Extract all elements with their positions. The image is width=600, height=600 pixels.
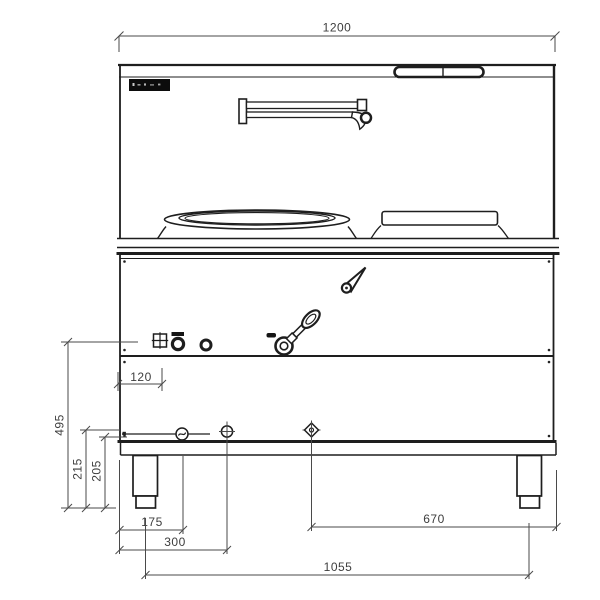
side-burner bbox=[371, 212, 509, 239]
leg-right-foot bbox=[520, 496, 540, 508]
igniter-button bbox=[152, 332, 168, 348]
dim-label-300: 300 bbox=[164, 535, 186, 549]
burner-knob-1 bbox=[172, 338, 183, 349]
brand-badge bbox=[129, 79, 170, 91]
knob-marker-dash bbox=[172, 332, 185, 336]
wok-range-elevation-drawing: 1200 495 215 205 120 bbox=[0, 0, 600, 600]
gas-valve-lever bbox=[276, 307, 323, 354]
panel-screws bbox=[123, 260, 550, 437]
faucet bbox=[239, 99, 371, 129]
technical-drawing-canvas: 1200 495 215 205 120 bbox=[0, 0, 600, 600]
drain-assembly bbox=[122, 428, 210, 440]
leg-left bbox=[133, 456, 158, 509]
dim-offset-120: 120 bbox=[114, 368, 166, 391]
wok-burner bbox=[158, 210, 357, 239]
vent-slot bbox=[395, 67, 484, 77]
dim-leg-205: 205 bbox=[90, 433, 128, 512]
drain-pipe-fitting bbox=[123, 432, 126, 435]
dim-label-175: 175 bbox=[141, 515, 163, 529]
base-rail bbox=[121, 443, 557, 455]
appliance-body bbox=[117, 65, 560, 508]
faucet-spout-arm bbox=[247, 112, 353, 118]
on-marker bbox=[267, 333, 277, 338]
control-cluster bbox=[152, 268, 366, 355]
dim-total-width: 1200 bbox=[115, 21, 560, 53]
dim-height-495: 495 bbox=[53, 338, 139, 512]
leg-right bbox=[517, 456, 542, 509]
leg-left-foot bbox=[136, 496, 156, 508]
burner-knob-2 bbox=[201, 340, 211, 350]
dim-label-215: 215 bbox=[71, 458, 85, 480]
dim-label-205: 205 bbox=[90, 460, 104, 482]
dim-label-1055: 1055 bbox=[324, 560, 353, 574]
dim-label-495: 495 bbox=[53, 414, 67, 436]
worktop bbox=[117, 239, 560, 254]
pilot-valve-lever bbox=[342, 268, 366, 293]
faucet-valve-knob bbox=[361, 113, 371, 123]
dim-label-1200: 1200 bbox=[323, 21, 352, 35]
faucet-upper-arm bbox=[247, 102, 360, 109]
dim-label-120: 120 bbox=[130, 370, 152, 384]
dim-label-670: 670 bbox=[423, 512, 445, 526]
front-panel bbox=[118, 253, 557, 455]
faucet-elbow bbox=[358, 100, 367, 111]
